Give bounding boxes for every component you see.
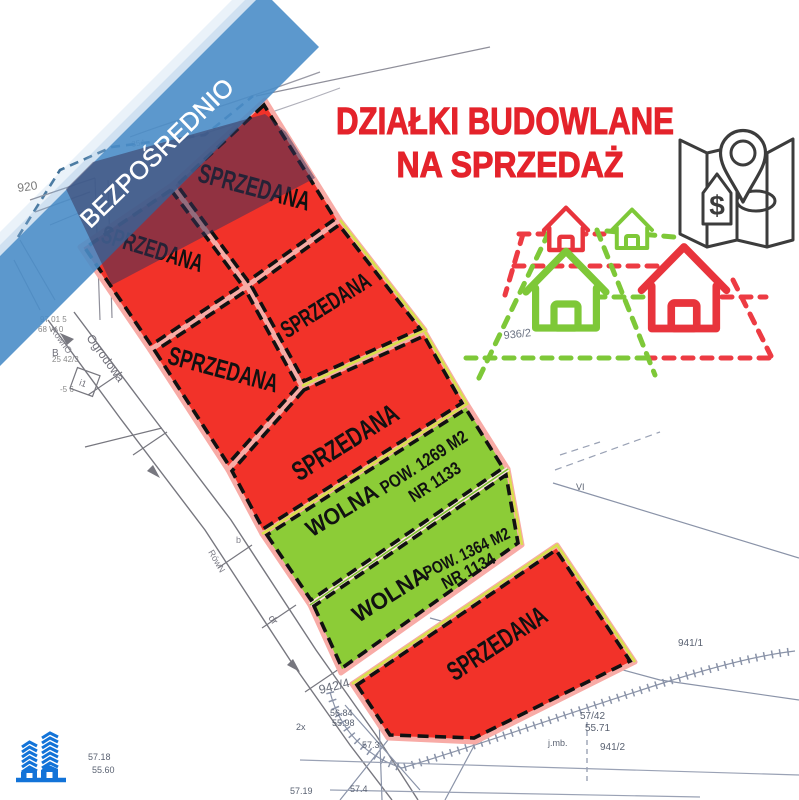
svg-text:55.71: 55.71 (585, 723, 610, 734)
svg-text:941/1: 941/1 (678, 638, 703, 649)
svg-text:2x: 2x (296, 722, 306, 732)
svg-text:57.18: 57.18 (88, 752, 111, 762)
svg-text:b: b (236, 535, 241, 545)
svg-text:B: B (52, 348, 59, 359)
svg-text:NA SPRZEDAŻ: NA SPRZEDAŻ (397, 144, 624, 185)
svg-text:DZIAŁKI BUDOWLANE: DZIAŁKI BUDOWLANE (336, 101, 674, 143)
svg-text:$: $ (709, 190, 725, 221)
svg-text:57.4: 57.4 (350, 784, 368, 794)
svg-text:941/2: 941/2 (600, 742, 625, 753)
svg-text:55.98: 55.98 (332, 718, 355, 728)
svg-text:VI: VI (576, 482, 585, 492)
svg-text:920: 920 (16, 178, 38, 195)
svg-text:57/42: 57/42 (580, 711, 605, 722)
svg-text:55.60: 55.60 (92, 765, 115, 775)
svg-text:56.84: 56.84 (330, 708, 353, 718)
svg-text:57.19: 57.19 (290, 786, 313, 796)
svg-text:j.mb.: j.mb. (547, 738, 568, 748)
svg-text:57.3: 57.3 (362, 740, 380, 750)
